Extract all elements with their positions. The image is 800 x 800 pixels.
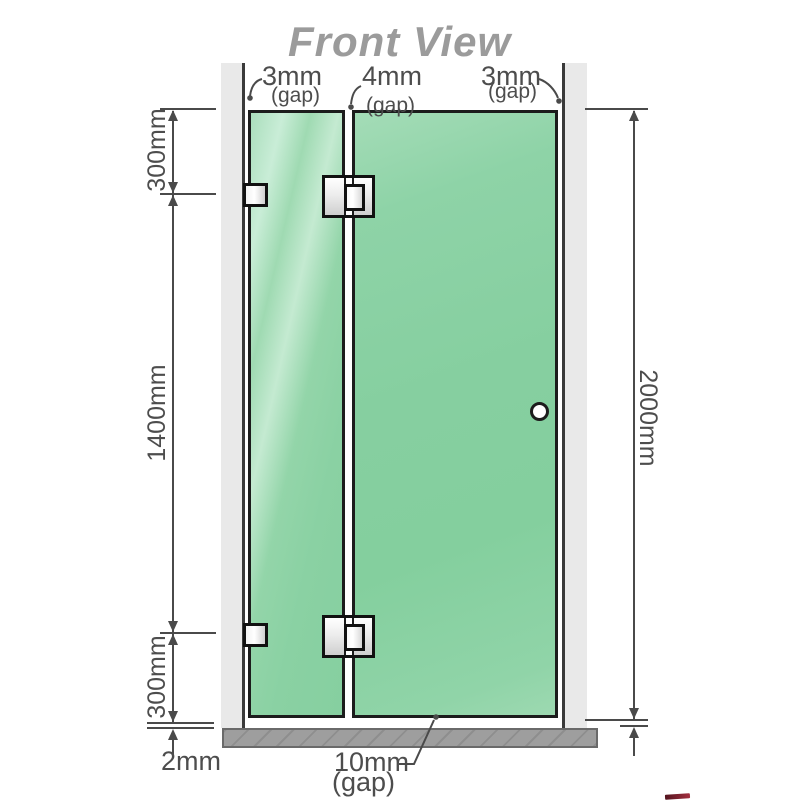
hinge-bottom-icon bbox=[322, 615, 375, 658]
leader-dot bbox=[348, 104, 354, 110]
dimension-line-300-top bbox=[172, 111, 174, 193]
dimension-line-2mm-right bbox=[633, 737, 635, 756]
page-title: Front View bbox=[288, 18, 511, 66]
leader-line-gap-left bbox=[250, 79, 262, 96]
top-gap-mid-value: 4mm bbox=[362, 61, 422, 92]
diagram-canvas: Front View 300mm 1400mm 30 bbox=[0, 0, 800, 800]
red-logo-fragment bbox=[665, 793, 690, 800]
wall-left bbox=[221, 63, 245, 728]
tick-line bbox=[585, 719, 648, 721]
wall-bracket-bottom-icon bbox=[243, 623, 268, 647]
leader-line-gap-right bbox=[539, 79, 558, 98]
dimension-line-1400 bbox=[172, 195, 174, 632]
leader-line-gap-mid bbox=[351, 86, 361, 104]
top-gap-left-note: (gap) bbox=[271, 84, 320, 108]
arrowhead bbox=[629, 708, 639, 719]
top-gap-right-note: (gap) bbox=[488, 80, 537, 104]
hinge-top-icon bbox=[322, 175, 375, 218]
dimension-label-1400: 1400mm bbox=[144, 353, 170, 473]
wall-right bbox=[562, 63, 587, 728]
dimension-label-300-top: 300mm bbox=[144, 90, 170, 210]
hinge-tab bbox=[344, 184, 365, 211]
dimension-label-2000: 2000mm bbox=[635, 358, 661, 478]
hinge-tab bbox=[344, 624, 365, 651]
dimension-label-300-bottom: 300mm bbox=[144, 617, 170, 737]
top-gap-mid-note: (gap) bbox=[366, 94, 415, 118]
wall-bracket-top-icon bbox=[243, 183, 268, 207]
leader-dot bbox=[247, 95, 253, 101]
leader-dot bbox=[556, 98, 562, 104]
glass-panel-door bbox=[352, 110, 558, 718]
arrowhead bbox=[629, 110, 639, 121]
door-knob-icon bbox=[530, 402, 549, 421]
dimension-label-2mm: 2mm bbox=[161, 746, 221, 777]
floor-tray bbox=[222, 728, 598, 748]
dimension-line-300-bottom bbox=[172, 634, 174, 722]
bottom-gap-note: (gap) bbox=[332, 767, 395, 798]
